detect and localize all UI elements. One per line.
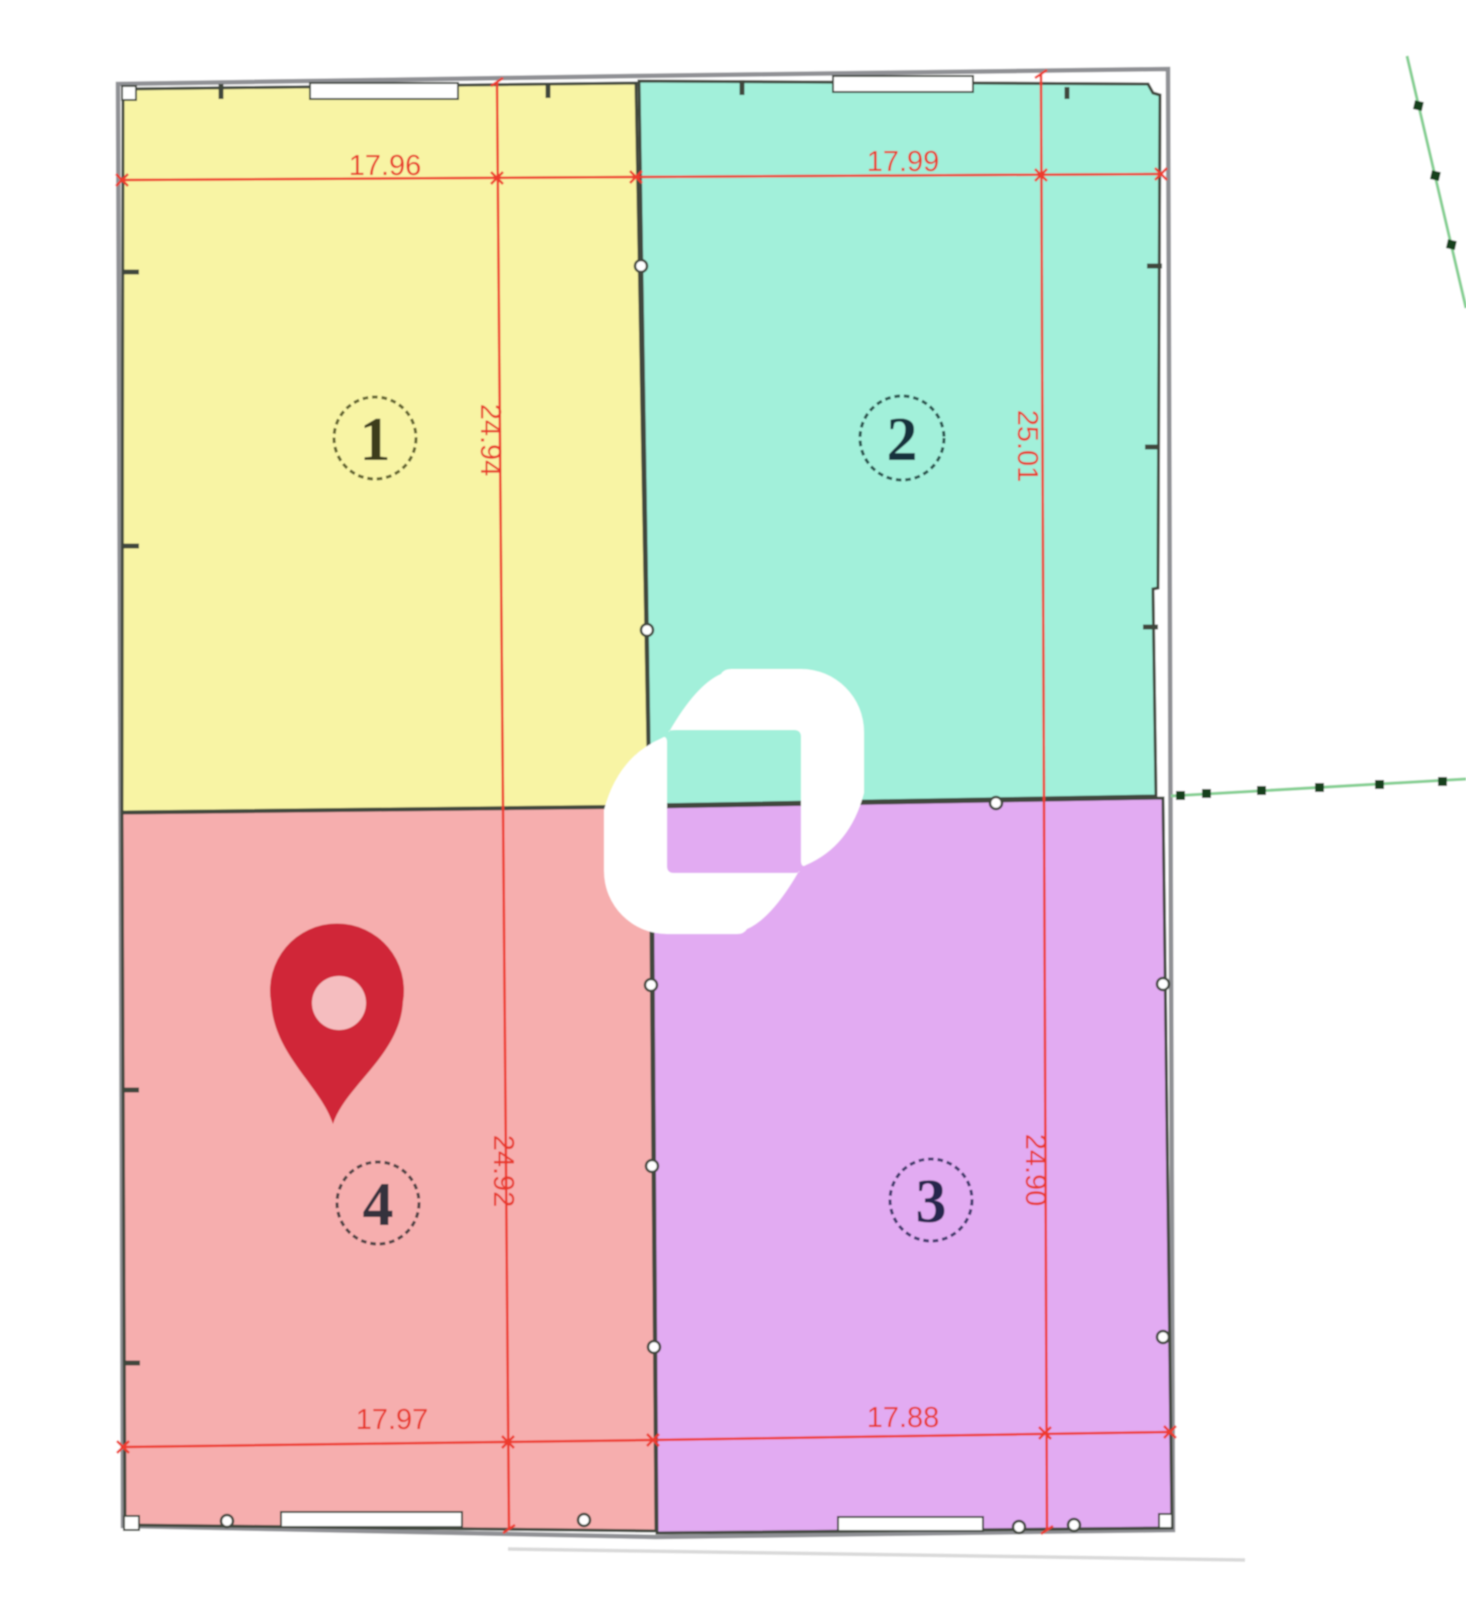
svg-text:17.97: 17.97 <box>356 1404 429 1436</box>
svg-text:24.94: 24.94 <box>474 404 506 477</box>
svg-text:17.88: 17.88 <box>867 1402 940 1434</box>
svg-text:17.99: 17.99 <box>867 146 940 178</box>
svg-text:1: 1 <box>360 406 391 474</box>
svg-text:17.96: 17.96 <box>349 150 422 182</box>
svg-text:4: 4 <box>363 1171 394 1239</box>
svg-text:25.01: 25.01 <box>1011 410 1043 483</box>
svg-text:24.90: 24.90 <box>1019 1134 1051 1207</box>
svg-text:24.92: 24.92 <box>487 1135 519 1208</box>
svg-text:2: 2 <box>887 406 918 474</box>
svg-text:3: 3 <box>916 1168 947 1236</box>
